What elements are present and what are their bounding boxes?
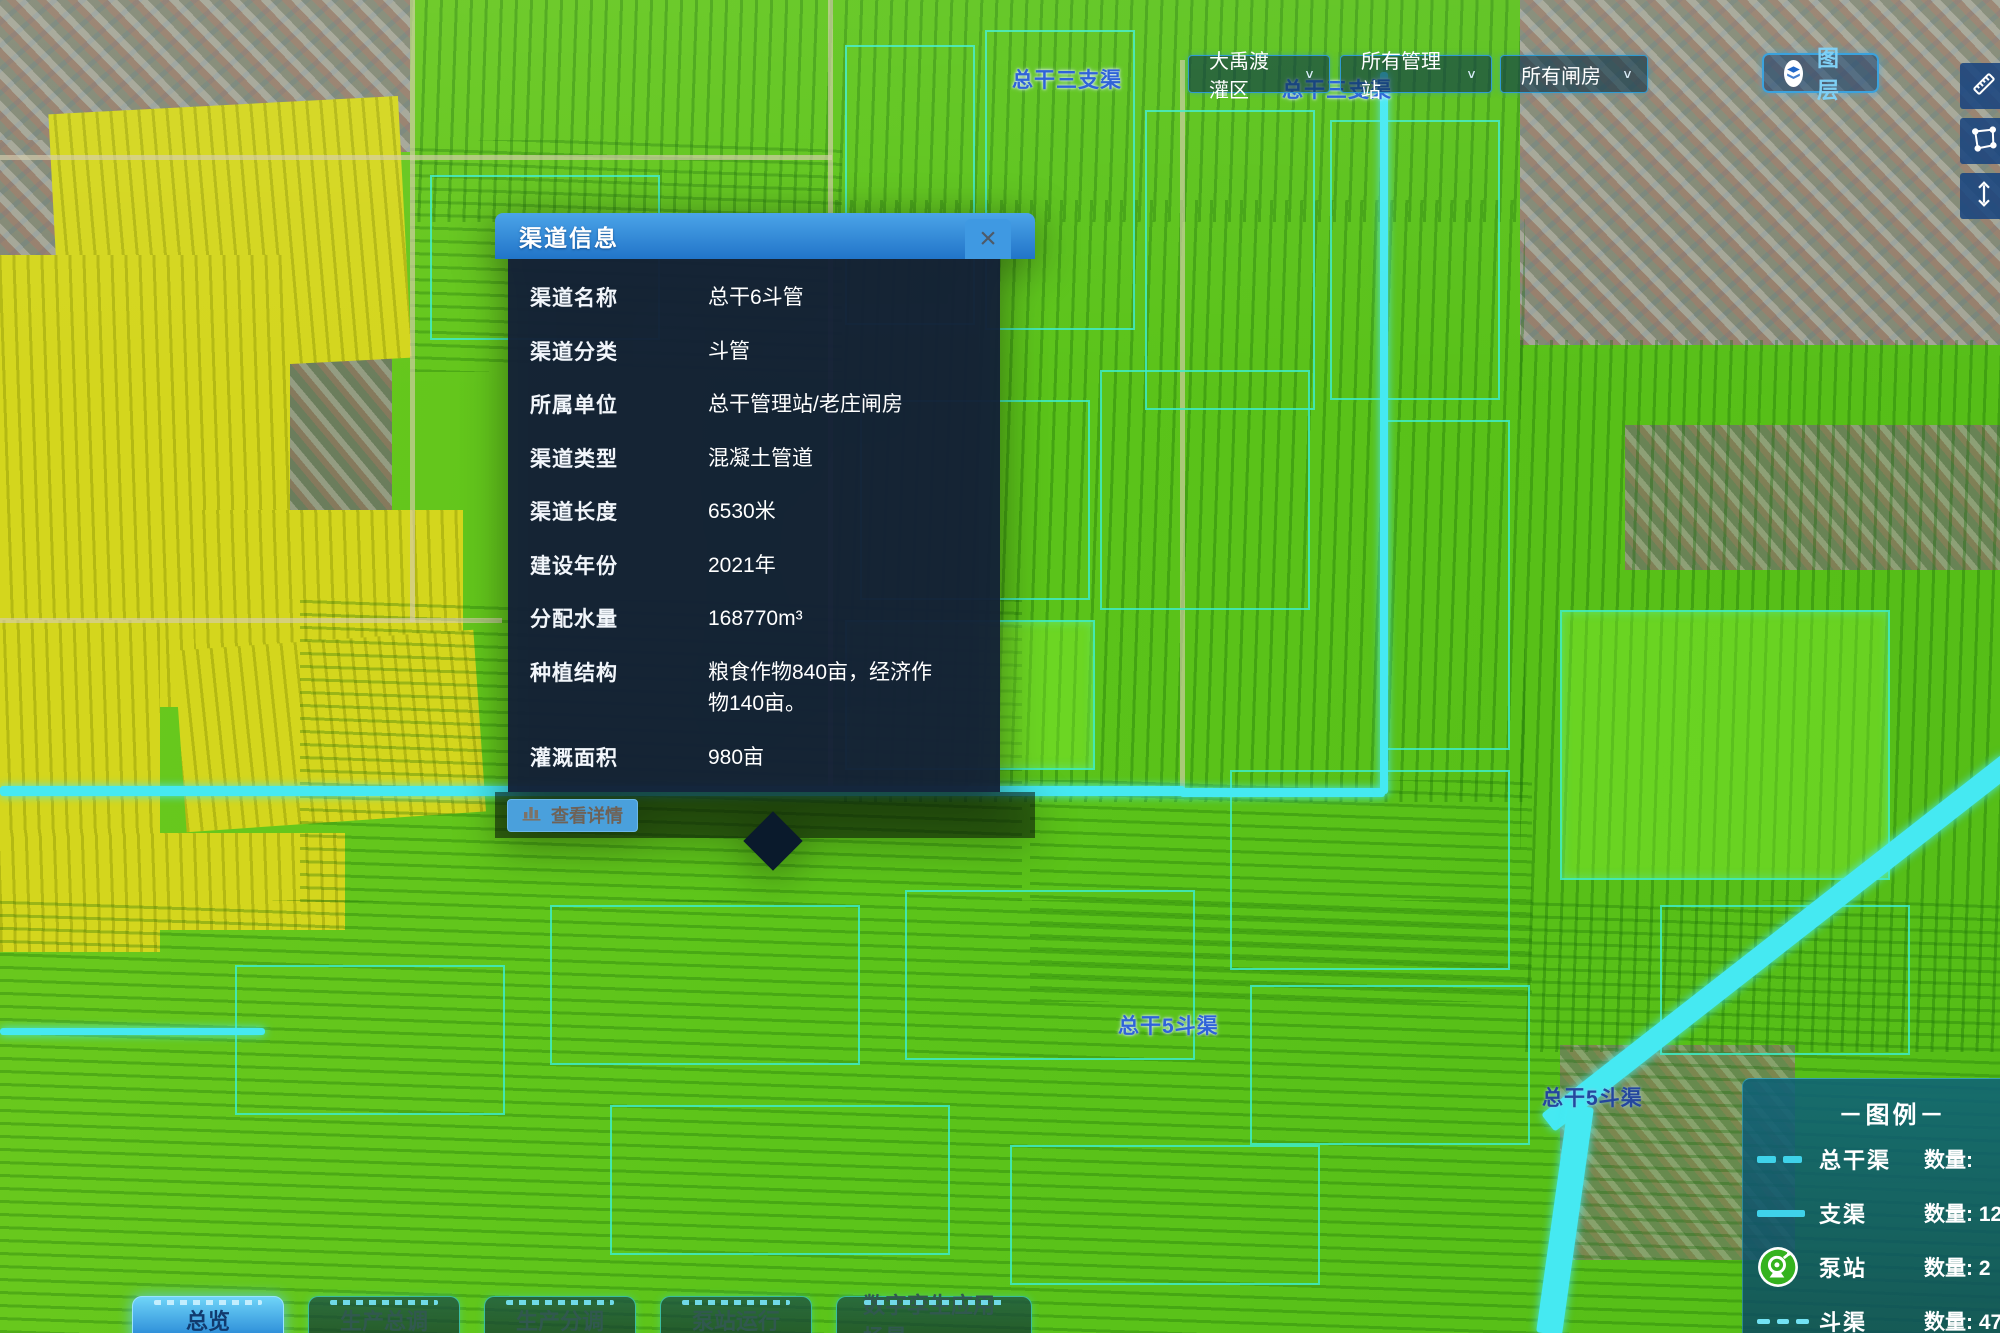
gate-house-select[interactable]: 所有闸房 ∨	[1500, 55, 1648, 93]
popup-footer: 查看详情	[495, 792, 1035, 838]
canal-line	[1180, 788, 1385, 797]
measure-area-button[interactable]	[1960, 118, 2000, 164]
management-station-select[interactable]: 所有管理站 ∨	[1340, 55, 1492, 93]
solid-line-icon	[1757, 1210, 1809, 1217]
layers-icon	[1784, 60, 1803, 87]
bar-chart-icon	[522, 804, 543, 826]
field-parcel-highlighted	[610, 1105, 950, 1255]
road	[0, 618, 502, 623]
canal-label: 总干5斗渠	[1542, 1082, 1643, 1112]
info-row-owner-unit: 所属单位总干管理站/老庄闸房	[508, 378, 1000, 432]
field-parcel-highlighted	[235, 965, 505, 1115]
field-parcel-highlighted	[1250, 985, 1530, 1145]
layers-button-label: 图 层	[1817, 41, 1857, 105]
village-area	[1520, 0, 2000, 345]
info-row-planting-structure: 种植结构粮食作物840亩，经济作物140亩。	[508, 646, 1000, 731]
close-button[interactable]: ×	[965, 219, 1011, 259]
info-row-channel-length: 渠道长度6530米	[508, 485, 1000, 539]
pump-station-icon	[1757, 1246, 1809, 1288]
field-parcel-highlighted	[1230, 770, 1510, 970]
legend-item-main-canal: 总干渠 数量:	[1743, 1134, 2000, 1184]
tab-overview[interactable]: 总览	[132, 1296, 284, 1333]
info-row-channel-class: 渠道分类斗管	[508, 325, 1000, 379]
tab-production-subdispatch[interactable]: 生产分调	[484, 1296, 636, 1333]
info-row-channel-type: 渠道类型混凝土管道	[508, 432, 1000, 486]
info-row-irrigated-area: 灌溉面积980亩	[508, 731, 1000, 785]
canal-line	[1380, 72, 1388, 794]
dashed-thin-line-icon	[1757, 1319, 1809, 1324]
irrigation-district-select[interactable]: 大禹渡灌区 ∨	[1188, 55, 1330, 93]
layers-button[interactable]: 图 层	[1762, 53, 1879, 93]
road	[0, 155, 832, 160]
field-parcel-highlighted	[1010, 1145, 1320, 1285]
legend-item-branch-canal: 支渠 数量: 12	[1743, 1188, 2000, 1238]
field-parcel-highlighted	[1380, 420, 1510, 750]
view-details-button[interactable]: 查看详情	[507, 799, 638, 832]
popup-body: 渠道名称总干6斗管 渠道分类斗管 所属单位总干管理站/老庄闸房 渠道类型混凝土管…	[508, 259, 1000, 792]
chevron-down-icon: ∨	[1466, 67, 1477, 81]
field-parcel-highlighted	[1100, 370, 1310, 610]
measure-distance-button[interactable]	[1960, 63, 2000, 109]
chevron-down-icon: ∨	[1304, 67, 1315, 81]
measure-height-button[interactable]	[1960, 173, 2000, 219]
popup-header: 渠道信息 ×	[495, 213, 1035, 259]
field-parcel-highlighted	[1145, 110, 1315, 410]
info-row-build-year: 建设年份2021年	[508, 539, 1000, 593]
canal-line	[0, 1028, 265, 1035]
tab-production-dispatch[interactable]: 生产总调	[308, 1296, 460, 1333]
tab-digital-twin-scenes[interactable]: 数字孪生应用场景	[836, 1296, 1032, 1333]
field-parcel-highlighted	[550, 905, 860, 1065]
bottom-nav-tabs: 总览 生产总调 生产分调 泵站运行 数字孪生应用场景	[132, 1296, 1032, 1333]
management-station-label: 所有管理站	[1361, 45, 1450, 103]
legend-item-lateral-canal: 斗渠 数量: 47	[1743, 1296, 2000, 1333]
close-icon: ×	[979, 224, 997, 254]
road	[410, 0, 415, 622]
irrigation-district-label: 大禹渡灌区	[1209, 45, 1288, 103]
field-parcel-highlighted	[1560, 610, 1890, 880]
gate-house-label: 所有闸房	[1521, 60, 1601, 89]
chevron-down-icon: ∨	[1622, 67, 1633, 81]
canal-label: 总干5斗渠	[1118, 1010, 1219, 1040]
tab-pump-operation[interactable]: 泵站运行	[660, 1296, 812, 1333]
field-parcel-highlighted	[1330, 120, 1500, 400]
info-row-allocated-water: 分配水量168770m³	[508, 592, 1000, 646]
popup-title: 渠道信息	[495, 219, 619, 253]
legend-item-pump-station: 泵站 数量: 2	[1743, 1242, 2000, 1292]
vertical-measure-icon	[1969, 179, 1999, 214]
dashed-thick-line-icon	[1757, 1156, 1809, 1163]
legend-title: －图例－	[1743, 1079, 2000, 1130]
info-row-channel-name: 渠道名称总干6斗管	[508, 271, 1000, 325]
legend-panel: －图例－ 总干渠 数量: 支渠 数量: 12 泵站 数量: 2 斗渠 数量: 4…	[1742, 1078, 2000, 1333]
canal-label: 总干三支渠	[1012, 64, 1122, 94]
channel-info-popup: 渠道信息 × 渠道名称总干6斗管 渠道分类斗管 所属单位总干管理站/老庄闸房 渠…	[495, 213, 1035, 838]
ruler-icon	[1969, 69, 1999, 104]
polygon-area-icon	[1969, 124, 1999, 159]
